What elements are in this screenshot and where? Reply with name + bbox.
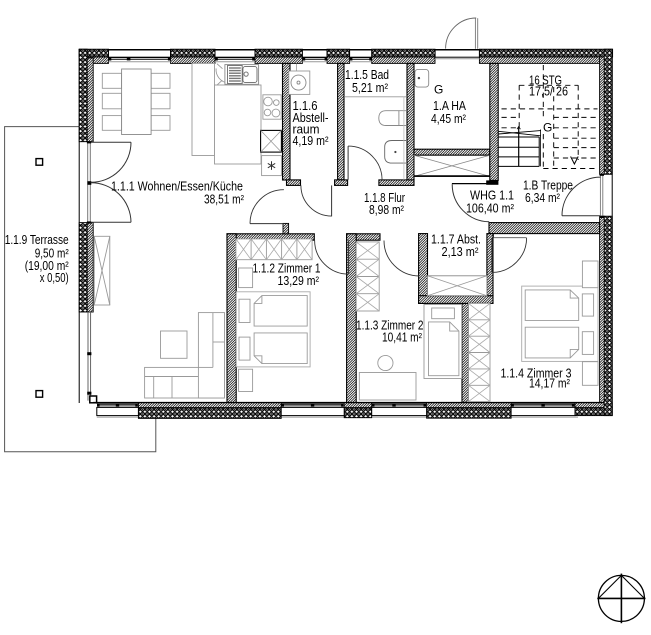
svg-text:G: G — [543, 121, 552, 135]
svg-text:10,41 m²: 10,41 m² — [382, 331, 422, 345]
svg-text:8,98 m²: 8,98 m² — [369, 203, 404, 217]
svg-text:1.1.1 Wohnen/Essen/Küche: 1.1.1 Wohnen/Essen/Küche — [111, 180, 243, 194]
svg-text:G: G — [434, 83, 443, 97]
svg-text:1.1.9 Terrasse: 1.1.9 Terrasse — [5, 233, 69, 247]
svg-text:5,21 m²: 5,21 m² — [352, 81, 388, 95]
svg-text:13,29 m²: 13,29 m² — [278, 274, 320, 288]
svg-text:4,19 m²: 4,19 m² — [293, 134, 329, 148]
svg-text:WHG 1.1: WHG 1.1 — [470, 189, 514, 203]
svg-text:1.A HA: 1.A HA — [433, 99, 467, 113]
svg-text:17,5/ 26: 17,5/ 26 — [529, 85, 568, 99]
svg-text:14,17 m²: 14,17 m² — [529, 377, 570, 391]
svg-text:x 0,50): x 0,50) — [40, 271, 69, 285]
svg-text:38,51 m²: 38,51 m² — [204, 193, 244, 207]
svg-text:4,45 m²: 4,45 m² — [431, 112, 466, 126]
svg-text:1.1.5 Bad: 1.1.5 Bad — [345, 68, 389, 82]
svg-text:106,40 m²: 106,40 m² — [466, 202, 514, 216]
svg-text:2,13 m²: 2,13 m² — [442, 245, 479, 259]
svg-text:6,34 m²: 6,34 m² — [525, 191, 560, 205]
